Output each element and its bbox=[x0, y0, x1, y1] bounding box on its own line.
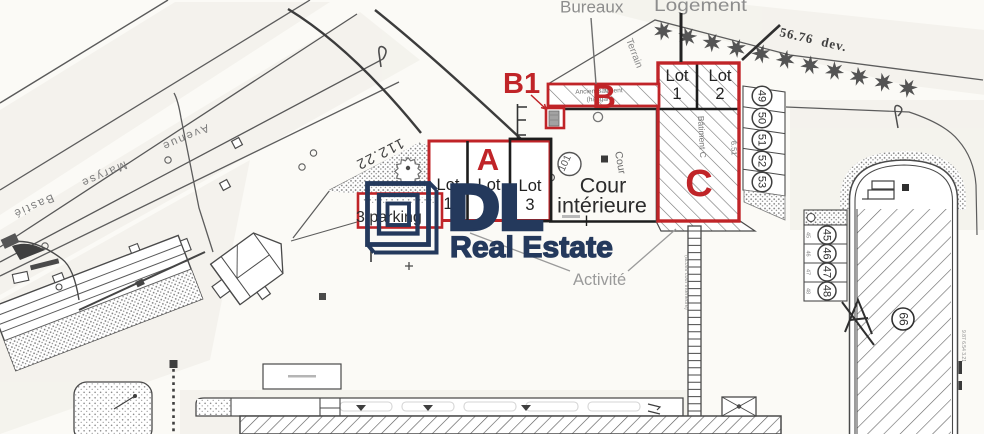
svg-text:46: 46 bbox=[805, 250, 811, 256]
svg-text:Bureaux: Bureaux bbox=[560, 0, 624, 17]
svg-text:47: 47 bbox=[805, 269, 811, 275]
svg-text:Lot: Lot bbox=[666, 67, 689, 85]
svg-text:9.87 6.54 3.21: 9.87 6.54 3.21 bbox=[960, 330, 966, 362]
svg-text:45: 45 bbox=[805, 232, 811, 238]
svg-text:45: 45 bbox=[821, 229, 833, 241]
svg-text:49: 49 bbox=[756, 90, 768, 102]
svg-text:Real Estate: Real Estate bbox=[450, 231, 613, 264]
svg-text:(accès cour intérieure): (accès cour intérieure) bbox=[683, 255, 689, 310]
svg-text:52: 52 bbox=[756, 155, 768, 167]
svg-text:50: 50 bbox=[756, 112, 768, 124]
svg-text:6.51: 6.51 bbox=[729, 141, 739, 156]
svg-text:A: A bbox=[477, 142, 499, 177]
svg-text:2: 2 bbox=[715, 85, 724, 103]
svg-text:46: 46 bbox=[821, 247, 833, 259]
svg-text:C: C bbox=[685, 163, 712, 205]
svg-text:48: 48 bbox=[805, 288, 811, 294]
svg-text:48: 48 bbox=[821, 285, 833, 297]
svg-text:Lot: Lot bbox=[709, 67, 732, 85]
svg-text:1: 1 bbox=[672, 85, 681, 103]
svg-text:intérieure: intérieure bbox=[557, 194, 647, 218]
svg-text:Logement: Logement bbox=[654, 0, 747, 15]
svg-text:47: 47 bbox=[821, 266, 833, 278]
svg-text:B1: B1 bbox=[503, 68, 540, 100]
svg-text:53: 53 bbox=[756, 176, 768, 188]
svg-text:Activité: Activité bbox=[573, 271, 626, 289]
svg-text:51: 51 bbox=[756, 134, 768, 146]
svg-text:66: 66 bbox=[897, 312, 911, 326]
